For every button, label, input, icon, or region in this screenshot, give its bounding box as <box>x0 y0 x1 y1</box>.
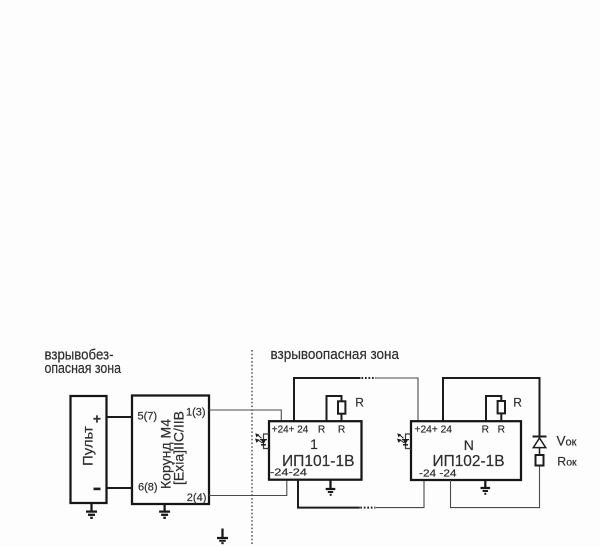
svg-text:R: R <box>338 425 345 436</box>
svg-text:[Exia]IIC/IIB: [Exia]IIC/IIB <box>171 411 187 485</box>
svg-text:взрывоопасная зона: взрывоопасная зона <box>271 347 400 363</box>
svg-text:+24+ 24: +24+ 24 <box>272 425 309 436</box>
svg-text:-24-24: -24-24 <box>270 467 308 478</box>
svg-text:R: R <box>482 425 489 436</box>
svg-text:Пульт: Пульт <box>80 425 96 466</box>
svg-text:+24+ 24: +24+ 24 <box>415 425 453 436</box>
svg-text:R: R <box>513 395 522 409</box>
svg-text:6(8): 6(8) <box>138 482 158 494</box>
svg-text:-24 -24: -24 -24 <box>419 468 457 479</box>
svg-text:R: R <box>318 425 325 436</box>
svg-text:N: N <box>464 437 474 453</box>
svg-text:1: 1 <box>310 436 318 452</box>
svg-text:2(4): 2(4) <box>187 492 207 504</box>
svg-text:1(3): 1(3) <box>186 407 206 419</box>
svg-text:R: R <box>498 425 505 436</box>
svg-text:опасная зона: опасная зона <box>45 361 122 377</box>
svg-text:R: R <box>355 396 364 410</box>
svg-text:Rок: Rок <box>557 455 577 469</box>
svg-text:5(7): 5(7) <box>138 410 158 422</box>
svg-text:+: + <box>93 411 101 427</box>
svg-text:Vок: Vок <box>557 433 577 448</box>
